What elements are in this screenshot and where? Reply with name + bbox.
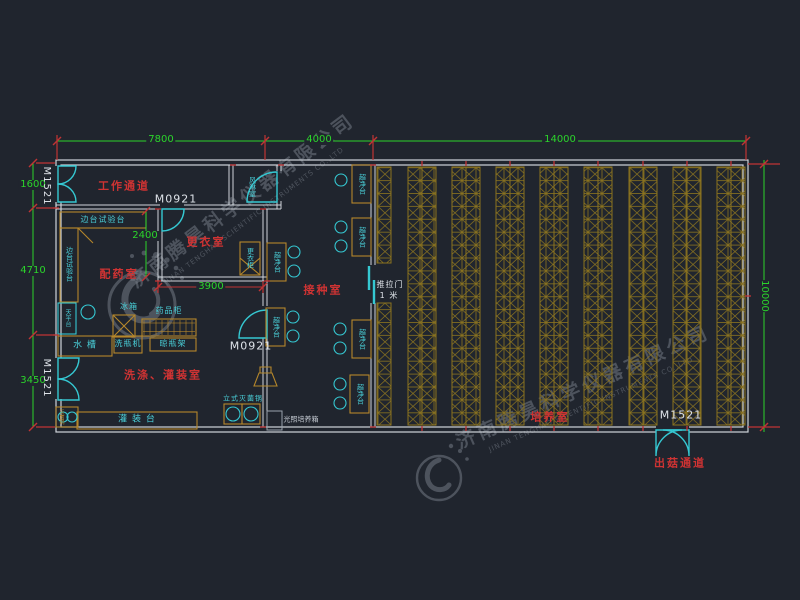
room-label-dispensing: 配药室 [100, 269, 139, 280]
stool-icon [334, 323, 346, 335]
furniture-label-medicine-cabinet: 药品柜 [156, 307, 183, 315]
stool-icon [288, 265, 300, 277]
furniture-label-clean-bench: 超净台 [359, 329, 366, 350]
furniture-label-balance-table: 天平台 [64, 309, 70, 327]
stool-icon [334, 342, 346, 354]
furniture-label-filling-table: 灌 装 台 [118, 416, 156, 425]
door-label-m1521: M1521 [660, 410, 703, 421]
furniture-label-sink: 水 槽 [73, 342, 97, 351]
stool-icon [334, 378, 346, 390]
dim-top-4000: 4000 [304, 135, 333, 145]
room-label-air-shower: 风淋室 [249, 177, 256, 198]
room-label-inoculation: 接种室 [304, 285, 343, 296]
room-label-washing: 洗涤、灌装室 [124, 370, 202, 381]
furniture-label-light-incubator: 光照培养箱 [284, 417, 319, 424]
culture-rack-icons [377, 167, 745, 425]
sliding-door-icon [369, 266, 374, 304]
dim-right-10000: 10000 [757, 280, 771, 312]
furniture-label-clean-bench: 超净台 [359, 174, 366, 195]
room-label-changing: 更衣室 [187, 237, 226, 248]
room-label-corridor: 工作通道 [98, 181, 150, 192]
furniture-label-bottle-washer: 洗瓶机 [115, 340, 142, 348]
culture-rack-icon [377, 303, 391, 425]
furniture-label-side-bench: 边台试验台 [66, 247, 73, 282]
door-label-m1521: M1521 [41, 166, 51, 205]
culture-rack-icon [377, 167, 391, 263]
furniture-label-clean-bench: 超净台 [273, 317, 280, 338]
stool-icon [335, 240, 347, 252]
floorplan-drawing [0, 0, 800, 600]
stool-icon [335, 221, 347, 233]
furniture-label-small-sterilizer: 灭菌锅 [59, 410, 64, 425]
stool-icon [287, 311, 299, 323]
door-swing-icon [162, 209, 184, 231]
furniture-label-wardrobe: 更衣柜 [247, 248, 254, 269]
stool-icon [335, 174, 347, 186]
furniture-label-clean-bench: 超净台 [359, 227, 366, 248]
sliding-door-label: 推拉门 [377, 281, 404, 289]
furniture-label-sterilizer: 立式灭菌锅 [223, 396, 263, 403]
stool-icon [287, 330, 299, 342]
door-label-m0921: M0921 [230, 341, 273, 352]
dim-top-14000: 14000 [542, 135, 578, 145]
room-label-culture: 培养室 [531, 412, 570, 423]
furniture-label-clean-bench: 超净台 [357, 384, 364, 405]
furniture-label-side-bench: 边台试验台 [81, 216, 126, 224]
stool-icon [334, 397, 346, 409]
room-label-exit-corridor: 出菇通道 [654, 458, 706, 469]
door-label-m0921: M0921 [155, 194, 198, 205]
furniture-label-fridge: 冰箱 [120, 303, 138, 311]
dim-left-4710: 4710 [18, 266, 47, 276]
dim-top-7800: 7800 [146, 135, 175, 145]
dim-3900: 3900 [196, 282, 225, 292]
door-label-m1521: M1521 [41, 358, 51, 397]
sliding-door-size: 1 米 [380, 292, 399, 300]
stool-icon [288, 246, 300, 258]
door-swing-icon [239, 310, 267, 338]
furniture-label-bottle-rack: 晾瓶架 [160, 340, 187, 348]
cad-floorplan-canvas: 济南腾昊科学仪器有限公司 JINAN TENGHAO SCIENTIFIC IN… [0, 0, 800, 600]
furniture-label-clean-bench: 超净台 [274, 252, 281, 273]
platform-scale-icon [254, 367, 277, 386]
stool-icon [81, 305, 95, 319]
dim-2400: 2400 [130, 231, 159, 241]
